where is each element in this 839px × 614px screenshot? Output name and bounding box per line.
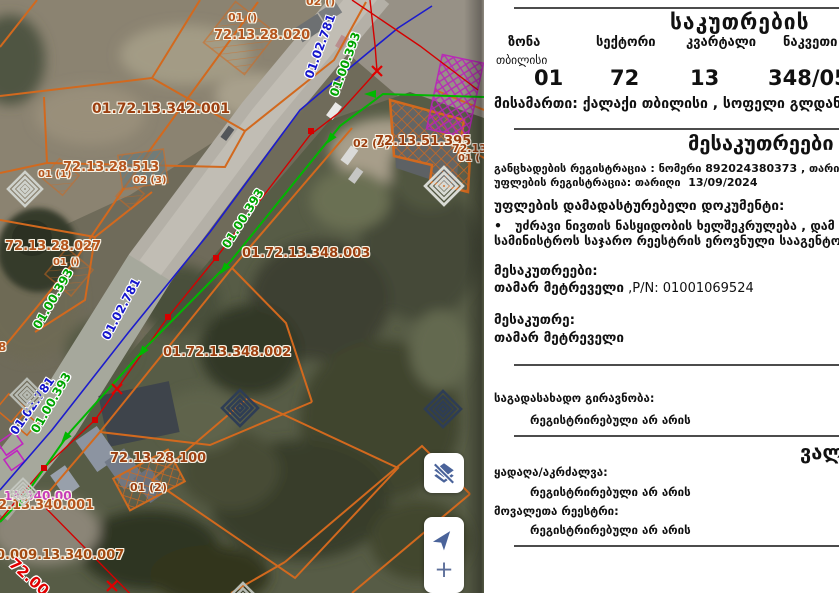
- panel-title: საკუთრების: [670, 10, 810, 34]
- zoom-in-button[interactable]: +: [434, 559, 453, 582]
- owners-label: მესაკუთრეები:: [494, 264, 598, 280]
- divider: [514, 7, 839, 9]
- quarter-value: 13: [690, 66, 719, 90]
- cadastral-code-label: 72.13.28.027: [5, 240, 101, 253]
- parcel-value: 348/05: [768, 66, 839, 90]
- seizure-value: რეგისტრირებული არ არის: [530, 486, 691, 499]
- cadastral-code-label: 8: [0, 341, 6, 353]
- document-line-1: • უძრავი ნივთის ნასყიდობის ხელშეკრულება …: [494, 219, 835, 233]
- cadastral-code-label: 01 (2): [130, 482, 167, 493]
- zone-value: 01: [534, 66, 563, 90]
- spiral-marker-icon: [9, 377, 45, 417]
- address-line: მისამართი: ქალაქი თბილისი , სოფელი გლდან…: [494, 96, 839, 112]
- owner-name: თამარ მეტრეველი: [494, 280, 624, 296]
- cadastral-code-label: 01 (): [228, 12, 257, 23]
- col-header-sector: სექტორი: [596, 36, 656, 51]
- cadastral-code-label: 01.72.13.348.002: [163, 346, 291, 359]
- cadastral-code-label: 72.13.28.100: [110, 452, 206, 465]
- owner-personal-number: ,P/N: 01001069524: [624, 281, 754, 296]
- obligations-heading: ვალდებულებები: [800, 441, 839, 464]
- spiral-marker-icon: [423, 389, 463, 433]
- divider: [514, 364, 839, 366]
- cadastral-code-label: 01.72.13.342.001: [92, 102, 230, 116]
- layers-toggle-button[interactable]: [424, 453, 464, 493]
- owner-section-heading: მესაკუთრეები: [688, 132, 834, 155]
- cadastral-code-label: 01.72.13.348.003: [242, 247, 370, 260]
- spiral-marker-icon: [423, 165, 465, 211]
- map-nav-zoom-panel: +: [424, 517, 464, 593]
- navigation-arrow-button[interactable]: [432, 527, 456, 551]
- debtors-label: მოვალეთა რეესტრი:: [494, 505, 619, 518]
- cadastral-code-label: 02 (): [306, 0, 335, 7]
- cadastral-code-label: 02 (3): [133, 176, 167, 186]
- spiral-marker-icon: [6, 170, 44, 212]
- right-registration: უფლების რეგისტრაცია: თარიღი 13/09/2024: [494, 177, 757, 190]
- owner-line: თამარ მეტრეველი ,P/N: 01001069524: [494, 281, 754, 297]
- col-header-quarter: კვარტალი: [686, 36, 756, 51]
- owner-name-2: თამარ მეტრეველი: [494, 331, 624, 347]
- layers-off-icon: [431, 460, 457, 486]
- col-header-zone: ზონა: [508, 36, 540, 51]
- tax-lien-value: რეგისტრირებული არ არის: [530, 414, 691, 427]
- divider: [514, 128, 839, 130]
- application-registration: განცხადების რეგისტრაცია : ნომერი 8920243…: [494, 163, 839, 176]
- tax-lien-label: საგადასახადო გირავნობა:: [494, 392, 654, 405]
- parcel-info-panel: საკუთრების ზონა სექტორი კვარტალი ნაკვეთი…: [484, 0, 839, 614]
- divider: [514, 545, 839, 547]
- cadastral-code-label: 72.13.28.513: [63, 161, 159, 174]
- cadastral-map[interactable]: + 01 ()72.13.28.02002 ()01.72.13.342.001…: [0, 0, 484, 593]
- cadastral-code-label: 72.13.28.020: [214, 29, 310, 42]
- sector-value: 72: [610, 66, 639, 90]
- spiral-marker-icon: [223, 581, 263, 593]
- panel-edge-shadow: [464, 0, 484, 593]
- app-window: + 01 ()72.13.28.02002 ()01.72.13.342.001…: [0, 0, 839, 614]
- document-heading: უფლების დამადასტურებელი დოკუმენტი:: [494, 199, 784, 215]
- seizure-label: ყადაღა/აკრძალვა:: [494, 466, 608, 479]
- debtors-value: რეგისტრირებული არ არის: [530, 524, 691, 537]
- owner-label: მესაკუთრე:: [494, 313, 575, 329]
- spiral-marker-icon: [8, 477, 38, 511]
- col-header-parcel: ნაკვეთი: [783, 36, 837, 51]
- document-line-2: სამინისტროს საჯარო რეესტრის ეროვნული საა…: [494, 234, 839, 248]
- divider: [514, 435, 839, 437]
- spiral-marker-icon: [220, 388, 260, 432]
